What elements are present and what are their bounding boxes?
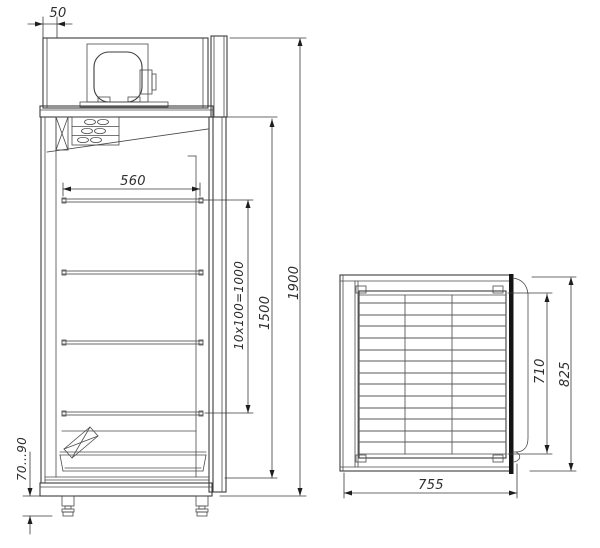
shelf [62, 270, 203, 275]
dim-leg-height-70-90: 70...90 [15, 437, 52, 534]
technical-drawing-canvas: 50 560 10x100=1000 1500 [0, 0, 600, 548]
dim-label-755: 755 [418, 478, 444, 493]
dim-label-710: 710 [533, 358, 548, 384]
base-frame [40, 483, 212, 496]
dim-label-825: 825 [558, 361, 573, 387]
drain-pan [60, 431, 206, 471]
dim-inner-depth-710: 710 [508, 293, 552, 454]
door-section [209, 117, 226, 492]
sloped-panel [47, 129, 208, 152]
cabinet-body [41, 117, 209, 483]
drain-fitting [64, 427, 98, 458]
front-grille-panel [211, 36, 227, 117]
dim-label-10x100: 10x100=1000 [232, 261, 246, 350]
dim-shelf-width-560: 560 [63, 174, 200, 196]
technical-drawing-page: 50 560 10x100=1000 1500 [0, 0, 600, 548]
shelves [62, 198, 203, 416]
plan-shelf-grid [356, 286, 506, 462]
dim-label-1500: 1500 [258, 296, 273, 330]
dim-label-50: 50 [49, 6, 66, 21]
front-view: 50 560 10x100=1000 1500 [15, 6, 306, 534]
fan-icon [56, 117, 68, 150]
machine-compartment [43, 38, 208, 108]
dim-shelf-pitch-1000: 10x100=1000 [203, 200, 253, 413]
plan-door [509, 274, 528, 474]
dim-top-offset-50: 50 [28, 6, 72, 38]
adjustable-foot [62, 496, 74, 516]
adjustable-foot [196, 496, 208, 516]
top-view: 755 710 825 [340, 274, 576, 498]
shelf [62, 198, 203, 203]
evaporator [72, 117, 119, 145]
dim-label-560: 560 [120, 174, 146, 189]
shelf [62, 340, 203, 345]
shelf [62, 411, 203, 416]
compressor [80, 44, 168, 107]
dim-overall-width-755: 755 [344, 464, 517, 498]
dim-label-70-90: 70...90 [15, 437, 29, 481]
dim-label-1900: 1900 [287, 266, 302, 300]
